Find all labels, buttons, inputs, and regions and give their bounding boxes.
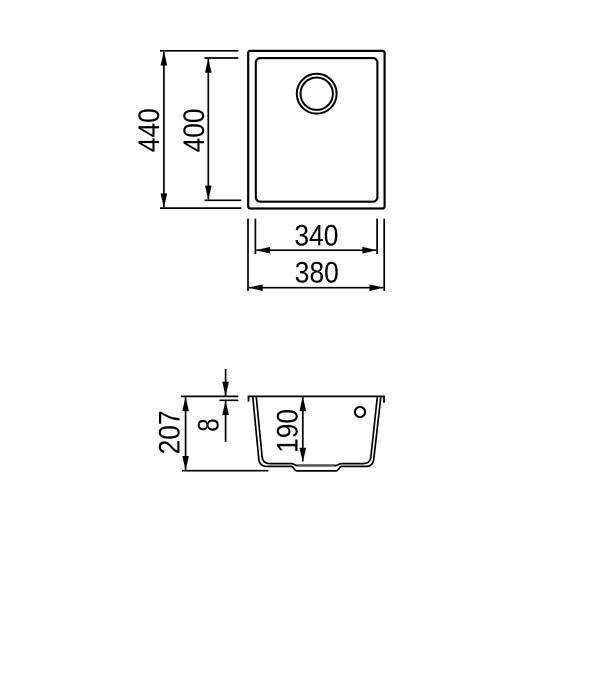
svg-text:380: 380: [295, 256, 339, 289]
svg-text:400: 400: [178, 108, 211, 152]
svg-text:190: 190: [272, 409, 305, 453]
svg-text:207: 207: [154, 410, 187, 454]
svg-text:340: 340: [294, 220, 338, 253]
svg-text:8: 8: [193, 418, 226, 431]
svg-text:440: 440: [133, 108, 166, 152]
